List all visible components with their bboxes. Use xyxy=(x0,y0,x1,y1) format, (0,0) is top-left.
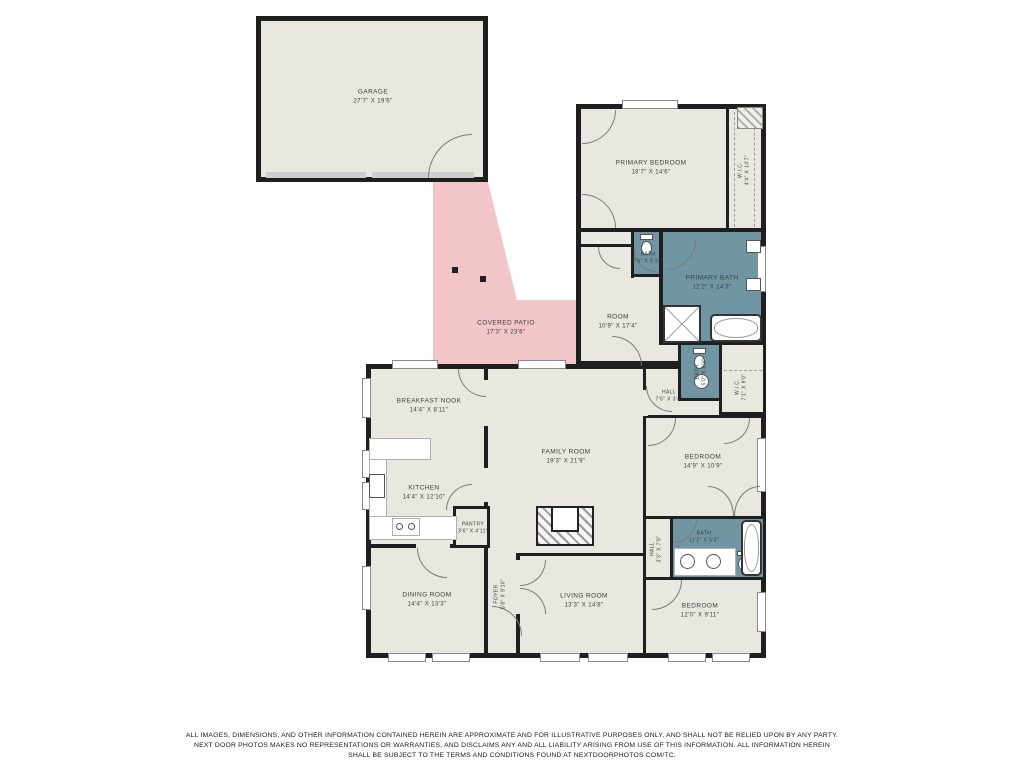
window-icon xyxy=(712,653,750,662)
disclaimer-line: NEXT DOOR PHOTOS MAKES NO REPRESENTATION… xyxy=(0,741,1024,751)
room-label-wic-2: W.I.C.7'1" X 9'0" xyxy=(734,373,748,400)
wall xyxy=(643,516,766,519)
window-icon xyxy=(392,360,438,369)
shower-icon xyxy=(663,305,701,343)
room-label-hall-1: HALL7'6" X 3'4" xyxy=(655,389,682,403)
room-label-foyer: FOYER5'8" X 9'10" xyxy=(493,579,507,609)
room-label-breakfast-nook: BREAKFAST NOOK14'4" X 8'11" xyxy=(397,397,462,416)
garage-door-icon xyxy=(266,172,366,178)
room-label-bedroom-3: BEDROOM12'0" X 9'11" xyxy=(681,602,720,621)
burner-icon xyxy=(396,523,403,530)
room-label-bath-wc-hall: BATH5'0" X 5'3" xyxy=(694,358,708,385)
window-icon xyxy=(518,360,566,369)
sink-icon xyxy=(680,554,695,569)
window-icon xyxy=(757,438,766,492)
covered-patio-area xyxy=(433,182,576,366)
room-label-bath-2: BATH11'2" X 5'3" xyxy=(689,530,719,544)
room-label-dining-room: DINING ROOM14'4" X 13'3" xyxy=(402,591,451,610)
bathtub-basin xyxy=(744,524,759,572)
patio-post-icon xyxy=(480,276,486,282)
room-label-primary-bedroom: PRIMARY BEDROOM18'7" X 14'6" xyxy=(616,159,687,178)
wall xyxy=(516,553,646,556)
room-label-wic-primary: W.I.C.4'4" X 14'7" xyxy=(737,155,751,185)
window-icon xyxy=(622,100,678,109)
attic-access-icon xyxy=(737,107,763,129)
window-icon xyxy=(540,653,580,662)
wall xyxy=(726,107,729,232)
room-label-kitchen: KITCHEN14'4" X 12'10" xyxy=(403,484,446,503)
room-label-room: ROOM10'9" X 17'4" xyxy=(598,313,637,332)
disclaimer-line: ALL IMAGES, DIMENSIONS, AND OTHER INFORM… xyxy=(0,731,1024,741)
floor-plan: GARAGE27'7" X 19'6" PRIMARY BEDROOM18'7"… xyxy=(0,0,1024,768)
room-label-covered-patio: COVERED PATIO17'3" X 23'6" xyxy=(477,319,535,338)
wall xyxy=(631,274,661,277)
room-label-living-room: LIVING ROOM13'3" X 14'8" xyxy=(560,592,608,611)
window-icon xyxy=(388,653,426,662)
room-label-bedroom-2: BEDROOM14'9" X 10'9" xyxy=(683,453,722,472)
disclaimer-text: ALL IMAGES, DIMENSIONS, AND OTHER INFORM… xyxy=(0,731,1024,762)
patio-post-icon xyxy=(452,267,458,273)
window-icon xyxy=(362,378,371,418)
window-icon xyxy=(588,653,628,662)
sink-icon xyxy=(706,554,721,569)
sink-icon xyxy=(746,240,761,253)
kitchen-peninsula xyxy=(369,438,431,460)
window-icon xyxy=(432,653,470,662)
room-label-bath-wc-primary: BATH2'6" X 5'10" xyxy=(633,251,663,265)
closet-rod-icon xyxy=(724,370,762,371)
toilet-icon xyxy=(693,348,706,354)
room-label-garage: GARAGE27'7" X 19'6" xyxy=(353,88,392,107)
bathtub-basin xyxy=(714,318,758,338)
room-label-family-room: FAMILY ROOM19'3" X 21'9" xyxy=(542,448,591,467)
fireplace-firebox xyxy=(551,506,579,532)
wall xyxy=(678,398,722,401)
window-icon xyxy=(668,653,706,662)
sink-icon xyxy=(746,278,761,291)
kitchen-sink-icon xyxy=(369,474,385,498)
window-icon xyxy=(362,566,371,610)
wall-opening xyxy=(483,468,489,502)
closet-rod-icon xyxy=(734,112,735,227)
window-icon xyxy=(757,592,766,632)
wall xyxy=(579,228,763,232)
toilet-icon xyxy=(640,234,653,240)
closet-rod-icon xyxy=(754,112,755,227)
wall xyxy=(719,341,722,415)
burner-icon xyxy=(408,523,415,530)
room-label-pantry: PANTRY3'6" X 4'11" xyxy=(458,521,488,535)
room-label-primary-bath: PRIMARY BATH12'2" X 14'3" xyxy=(686,274,739,293)
room-label-hall-2: HALL3'3" X 7'8" xyxy=(649,535,663,562)
disclaimer-line: SHALL BE SUBJECT TO THE TERMS AND CONDIT… xyxy=(0,751,1024,761)
